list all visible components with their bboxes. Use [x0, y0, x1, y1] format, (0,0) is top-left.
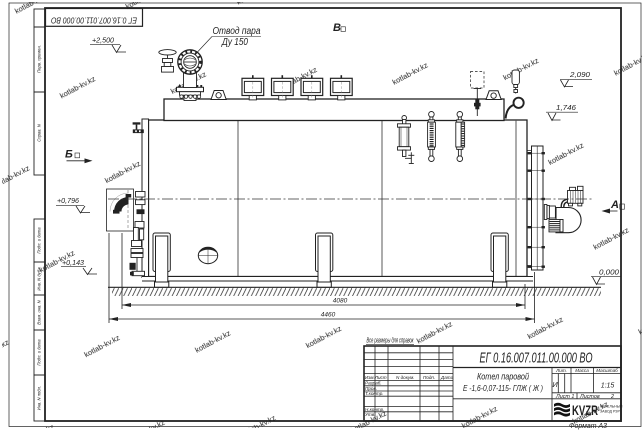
svg-text:Перв. примен.: Перв. примен. [37, 45, 42, 73]
svg-text:Масса: Масса [575, 368, 589, 373]
svg-text:Разраб.: Разраб. [365, 381, 382, 386]
svg-text:Формат А3: Формат А3 [569, 421, 608, 430]
svg-text:Листов: Листов [579, 394, 600, 400]
svg-text:2,090: 2,090 [569, 70, 591, 79]
svg-text:KVZR: KVZR [572, 402, 598, 418]
svg-text:В: В [333, 22, 341, 34]
svg-text:+0,796: +0,796 [57, 196, 80, 205]
svg-text:2: 2 [610, 394, 614, 400]
svg-text:Отвод пара: Отвод пара [213, 26, 261, 37]
svg-text:Изм.Лист: Изм.Лист [365, 375, 387, 380]
svg-text:И: И [552, 380, 558, 389]
svg-text:+0,143: +0,143 [62, 258, 85, 267]
svg-text:Инв. N подл.: Инв. N подл. [37, 386, 42, 410]
svg-text:0,000: 0,000 [599, 267, 620, 276]
svg-text:4460: 4460 [321, 312, 336, 319]
svg-text:ЕГ 0.16.007.011.00.000 ВО: ЕГ 0.16.007.011.00.000 ВО [51, 16, 137, 25]
svg-text:Инв. N дубл.: Инв. N дубл. [37, 266, 42, 290]
svg-text:Дата: Дата [440, 375, 454, 380]
svg-text:Е -1,6-0,07-115- ГЛЖ ( Ж ): Е -1,6-0,07-115- ГЛЖ ( Ж ) [463, 384, 543, 393]
svg-text:Лит.: Лит. [555, 368, 567, 373]
svg-text:+2,500: +2,500 [92, 36, 115, 45]
svg-text:А: А [610, 199, 619, 211]
svg-text:Т.контр.: Т.контр. [365, 391, 384, 396]
svg-text:ЕГ 0.16.007.011.00.000 ВО: ЕГ 0.16.007.011.00.000 ВО [480, 351, 593, 367]
svg-text:Утв.: Утв. [365, 412, 375, 417]
svg-text:КОТЕЛЬНЫЙ: КОТЕЛЬНЫЙ [600, 405, 623, 409]
svg-text:Взам. инв. N: Взам. инв. N [37, 299, 42, 324]
svg-text:Б: Б [65, 149, 73, 161]
svg-text:Подп. и дата: Подп. и дата [37, 339, 42, 366]
svg-text:Лист 1: Лист 1 [555, 394, 574, 400]
svg-text:Все размеры для справок: Все размеры для справок [367, 337, 414, 345]
svg-text:1,746: 1,746 [556, 103, 577, 112]
svg-text:Ду 150: Ду 150 [221, 37, 248, 48]
svg-text:Справ. N: Справ. N [37, 123, 42, 141]
svg-text:Масштаб: Масштаб [596, 368, 618, 373]
svg-text:Подп. и дата: Подп. и дата [37, 227, 42, 254]
svg-text:N докум.: N докум. [396, 375, 415, 380]
svg-text:ЗАВОД РЗР: ЗАВОД РЗР [600, 410, 620, 414]
svg-text:4080: 4080 [333, 298, 348, 305]
svg-text:1:15: 1:15 [601, 383, 615, 390]
svg-text:Котел паровой: Котел паровой [477, 372, 529, 382]
svg-text:Подп.: Подп. [423, 375, 435, 380]
